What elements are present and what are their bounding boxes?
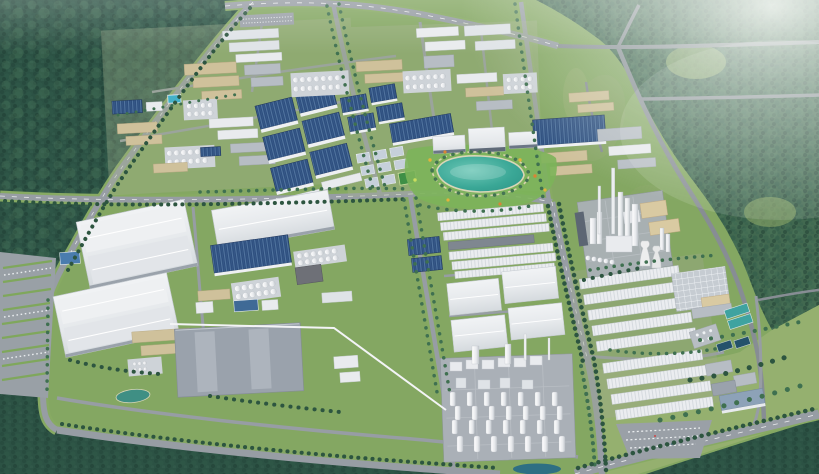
scene-canvas — [0, 0, 819, 474]
retention-pond — [513, 464, 561, 474]
southeast-parking — [616, 420, 712, 459]
dark-gable-building — [295, 264, 323, 284]
aerial-industrial-park-rendering — [0, 0, 819, 474]
large-gray-building — [174, 323, 303, 398]
